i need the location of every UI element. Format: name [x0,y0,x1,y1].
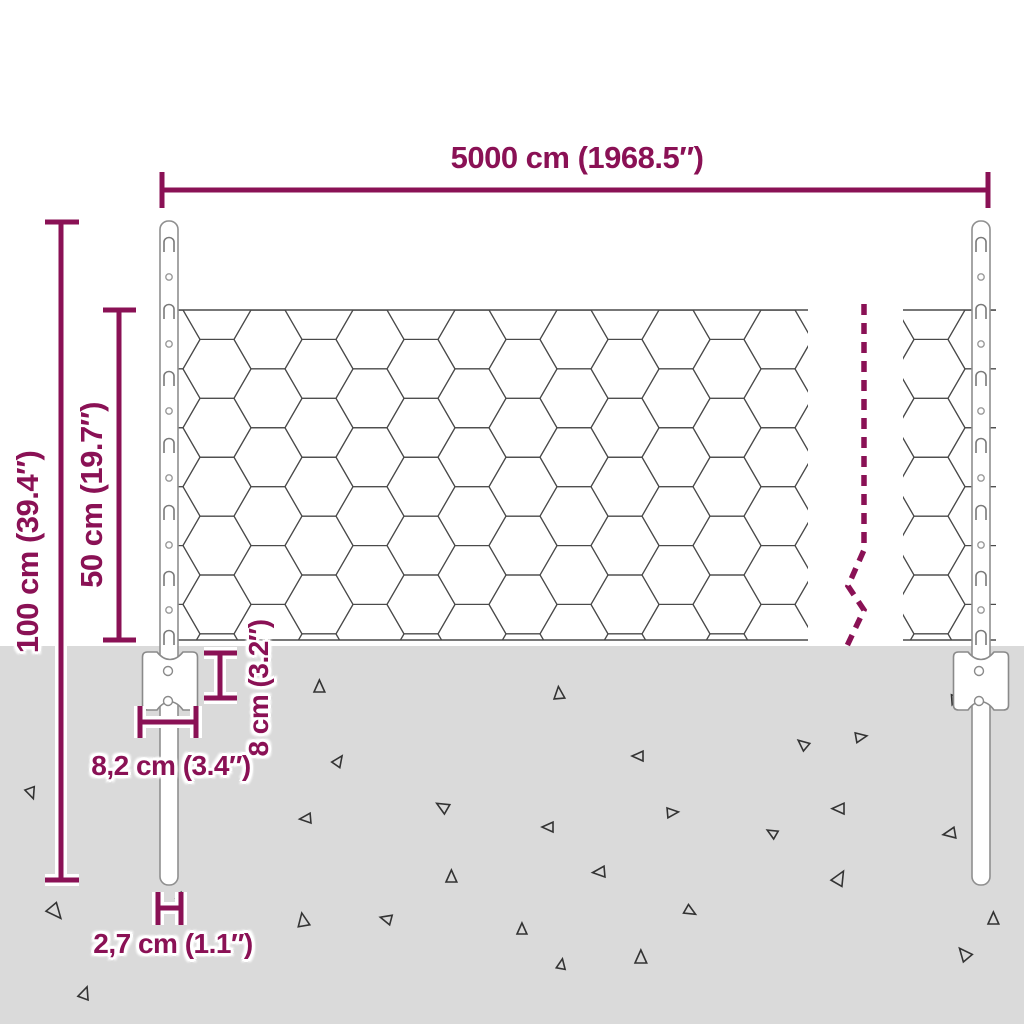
fence-post-left [160,221,178,885]
fence-post-right [972,221,990,885]
post-hole [978,475,984,481]
label-mesh-height: 50 cm (19.7″) [74,402,110,588]
post-hole [166,341,172,347]
label-total-width: 5000 cm (1968.5″) [451,140,704,176]
post-hole [978,274,984,280]
label-total-height: 100 cm (39.4″) [10,451,46,654]
post-hole [166,475,172,481]
label-anchor-height: 8 cm (3.2″) [243,619,275,756]
post-hole [166,274,172,280]
post-hole [978,542,984,548]
bracket-hole [164,697,173,706]
fence-dimension-diagram: 5000 cm (1968.5″) 100 cm (39.4″) 50 cm (… [0,0,1024,1024]
bracket-hole [975,697,984,706]
dim-total-width [162,172,988,208]
label-anchor-width: 8,2 cm (3.4″) [91,750,250,782]
post-hole [978,607,984,613]
mesh-panel-left-border [166,310,808,640]
post-hole [978,341,984,347]
post-hole [166,607,172,613]
label-post-diameter: 2,7 cm (1.1″) [93,928,252,960]
post-hole [166,408,172,414]
anchor-bracket-right [954,652,1009,710]
break-line [846,304,864,648]
post-hole [978,408,984,414]
bracket-hole [975,667,984,676]
anchor-bracket-left [143,652,198,710]
post-hole [166,542,172,548]
bracket-hole [164,667,173,676]
